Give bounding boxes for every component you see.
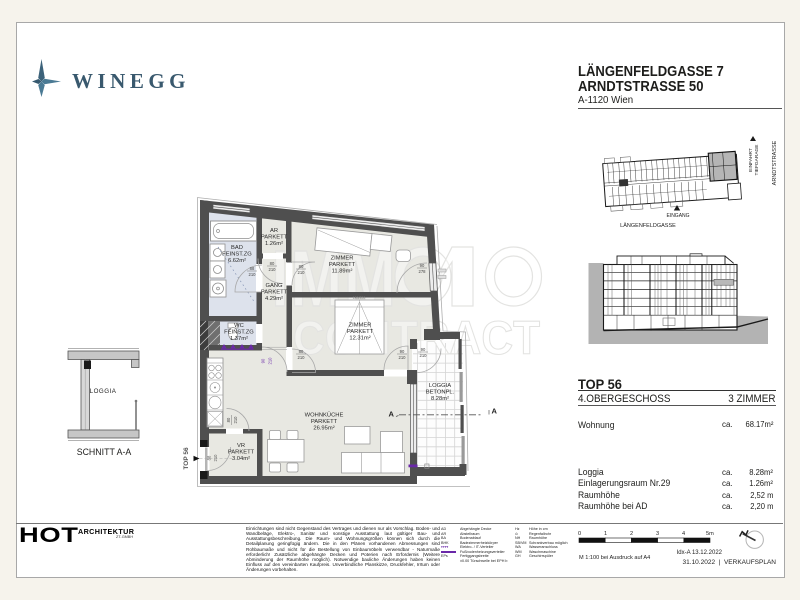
svg-text:210: 210 [233,416,238,424]
svg-text:GANG: GANG [265,283,283,289]
svg-text:8.28m²: 8.28m² [431,396,449,402]
svg-text:88: 88 [207,455,212,460]
svg-text:12.31m²: 12.31m² [349,336,370,342]
svg-text:LOGGIA: LOGGIA [429,383,451,389]
svg-text:ZIMMER: ZIMMER [349,323,372,329]
svg-text:4.29m²: 4.29m² [265,296,283,302]
svg-text:90: 90 [421,347,426,352]
svg-text:180/200: 180/200 [353,296,366,300]
svg-text:210: 210 [298,270,306,275]
svg-text:FEINST.ZG: FEINST.ZG [222,252,252,258]
svg-text:EINGANG: EINGANG [666,213,689,219]
svg-text:FEINST.ZG: FEINST.ZG [224,330,254,336]
svg-text:PARKETT: PARKETT [311,419,338,425]
svg-text:SCHNITT A-A: SCHNITT A-A [77,447,132,457]
svg-text:88: 88 [250,266,255,271]
svg-text:90: 90 [261,358,266,363]
svg-text:3.04m²: 3.04m² [232,456,250,462]
svg-text:BETONPL.: BETONPL. [426,390,455,396]
svg-text:2: 2 [630,531,633,537]
svg-text:0: 0 [578,531,581,537]
svg-text:6.62m²: 6.62m² [228,258,246,264]
svg-text:ZIMMER: ZIMMER [331,256,354,262]
svg-text:PARKETT: PARKETT [261,290,288,296]
svg-text:4: 4 [682,531,685,537]
svg-text:210: 210 [268,357,273,365]
svg-text:WC: WC [234,323,244,329]
svg-text:210: 210 [249,272,257,277]
svg-text:TOP 56: TOP 56 [183,447,190,470]
svg-text:3: 3 [656,531,659,537]
svg-text:1.26m²: 1.26m² [265,241,283,247]
svg-text:VR: VR [237,443,245,449]
svg-text:WINEGG: WINEGG [72,69,190,93]
svg-text:210: 210 [399,355,407,360]
svg-text:80: 80 [299,349,304,354]
svg-text:PARKETT: PARKETT [329,262,356,268]
svg-text:210: 210 [269,267,277,272]
svg-text:LOGGIA: LOGGIA [90,388,117,395]
svg-text:90: 90 [400,349,405,354]
svg-text:AR: AR [270,228,278,234]
svg-text:278: 278 [419,269,427,274]
svg-text:LÄNGENFELDGASSE: LÄNGENFELDGASSE [620,222,676,229]
svg-text:11.89m²: 11.89m² [332,269,353,275]
svg-text:WOHNKÜCHE: WOHNKÜCHE [305,412,344,419]
svg-text:1.37m²: 1.37m² [230,336,248,342]
svg-text:PARKETT: PARKETT [228,450,255,456]
svg-text:1: 1 [604,531,607,537]
svg-text:210: 210 [213,454,218,462]
svg-text:A: A [492,407,498,416]
svg-text:90: 90 [420,263,425,268]
svg-text:EINFAHRT: EINFAHRT [748,148,754,172]
svg-text:A: A [389,410,395,419]
svg-text:80: 80 [270,261,275,266]
svg-text:PARKETT: PARKETT [347,329,374,335]
svg-text:PARKETT: PARKETT [261,235,288,241]
svg-text:TIEFGARAGE: TIEFGARAGE [754,145,760,176]
svg-text:BAD: BAD [231,245,243,251]
svg-text:ARNDTSTRASSE: ARNDTSTRASSE [772,140,778,185]
svg-text:210: 210 [420,353,428,358]
svg-text:80: 80 [299,264,304,269]
svg-text:80: 80 [226,417,231,422]
svg-text:CONTRACT: CONTRACT [293,311,540,364]
svg-text:5m: 5m [706,531,714,537]
svg-text:210: 210 [298,355,306,360]
svg-text:26.95m²: 26.95m² [313,426,334,432]
